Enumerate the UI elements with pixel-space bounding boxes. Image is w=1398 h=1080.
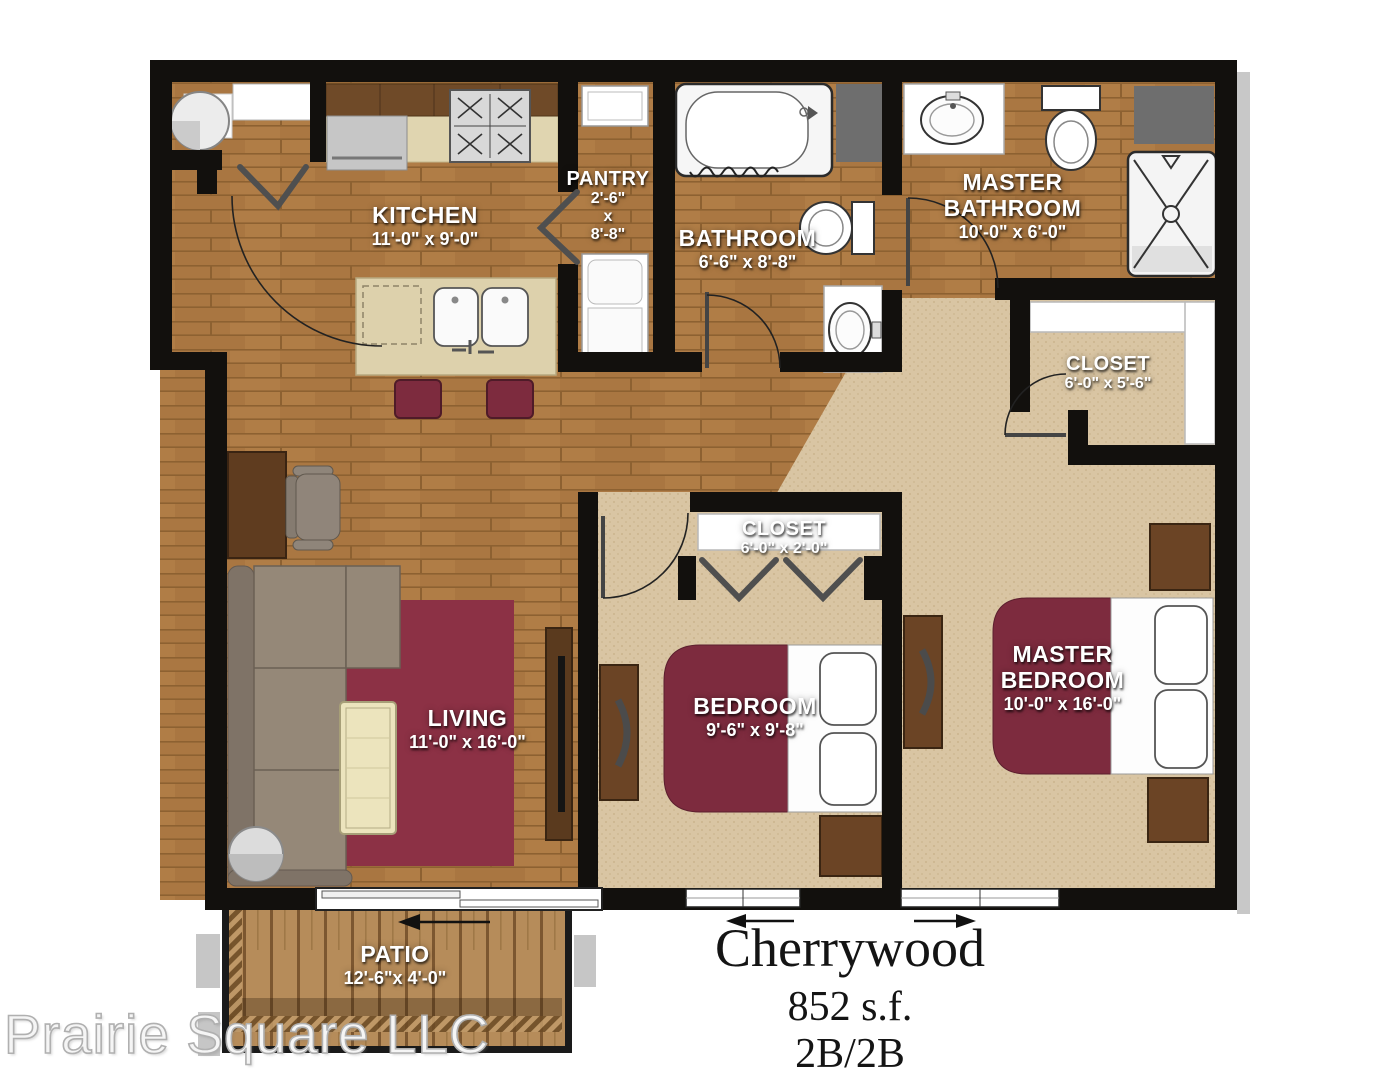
wall-segment — [882, 290, 902, 372]
pantry-shelf-inner — [588, 260, 642, 304]
utility-chase — [836, 84, 882, 162]
floorplan-drawing — [0, 0, 1398, 1080]
patio-frame-right — [565, 903, 572, 1053]
sink-drain — [502, 297, 509, 304]
wall-segment — [150, 60, 172, 370]
shower — [1128, 152, 1216, 276]
coffee-table — [340, 702, 396, 834]
patio-shadow-right — [574, 935, 596, 987]
sofa-chaise — [346, 566, 400, 668]
plan-shadow-right — [1237, 72, 1250, 914]
wall-segment — [653, 82, 675, 372]
wall-segment — [1068, 410, 1088, 465]
wall-segment — [690, 492, 902, 512]
wall-segment — [882, 512, 902, 888]
wall-segment — [1088, 445, 1217, 465]
wall-segment — [1215, 60, 1237, 910]
wall-segment — [995, 278, 1217, 300]
master-vanity — [904, 84, 1004, 154]
wall-segment — [205, 352, 227, 910]
shower-drain — [1163, 206, 1179, 222]
nightstand — [820, 816, 882, 876]
hall-closet-fixtures — [698, 514, 880, 550]
tv — [558, 656, 565, 812]
stove — [450, 90, 530, 162]
vanity-faucet — [872, 322, 881, 338]
wall-segment — [558, 82, 578, 192]
wall-segment — [653, 352, 702, 372]
wall-segment — [578, 492, 598, 512]
vanity-faucet — [946, 92, 960, 100]
watermark: Prairie Square LLC — [4, 1002, 490, 1066]
nightstand — [1150, 524, 1210, 590]
entry-shelf — [233, 84, 311, 120]
sink-drain — [452, 297, 459, 304]
closet-shelf-top — [1030, 302, 1188, 332]
plan-area: 852 s.f. — [630, 983, 1070, 1031]
wall-segment — [864, 556, 882, 600]
kitchen-island — [356, 278, 556, 375]
toilet — [800, 202, 874, 254]
dresser — [904, 616, 942, 748]
island-stool — [395, 380, 441, 418]
pillow — [820, 653, 876, 725]
master-window — [901, 889, 1059, 907]
patio-slider-door — [316, 888, 602, 910]
refrigerator — [327, 116, 407, 170]
office-chair — [286, 466, 340, 550]
wall-segment — [150, 150, 222, 170]
nightstand — [1148, 778, 1208, 842]
wall-segment — [678, 556, 696, 600]
island-stool — [487, 380, 533, 418]
bathtub — [676, 84, 832, 177]
pillow — [1155, 690, 1207, 768]
pillow — [820, 733, 876, 805]
vanity-drain — [950, 103, 956, 109]
bedroom-window — [686, 889, 800, 907]
wall-segment — [150, 60, 1237, 82]
master-toilet — [1042, 86, 1100, 170]
wall-segment — [578, 512, 598, 888]
shower-shade — [1132, 246, 1212, 272]
closet-shelf — [698, 514, 880, 550]
bed — [664, 645, 882, 812]
floorplan-canvas: KITCHEN 11'-0" x 9'-0" PANTRY 2'-6" x 8'… — [0, 0, 1398, 1080]
wall-segment — [310, 82, 326, 162]
pillow — [1155, 606, 1207, 684]
desk — [228, 452, 286, 558]
dresser — [600, 665, 638, 800]
closet-shelf-right — [1185, 302, 1215, 444]
wall-segment — [882, 60, 902, 195]
plan-name: Cherrywood — [630, 920, 1070, 977]
utility-chase — [1134, 86, 1214, 144]
master-bed — [993, 598, 1213, 774]
patio-shadow-left — [196, 934, 220, 988]
wall-segment — [197, 168, 217, 194]
plan-layout: 2B/2B — [630, 1031, 1070, 1077]
plan-title-block: Cherrywood 852 s.f. 2B/2B — [630, 920, 1070, 1077]
